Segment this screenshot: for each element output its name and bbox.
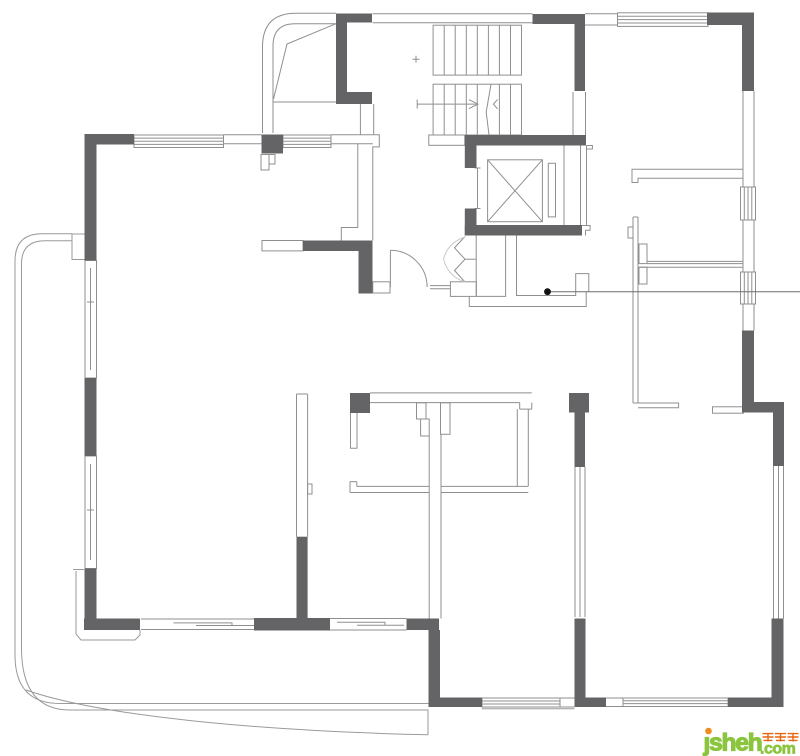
svg-text:.com: .com xyxy=(760,741,796,756)
